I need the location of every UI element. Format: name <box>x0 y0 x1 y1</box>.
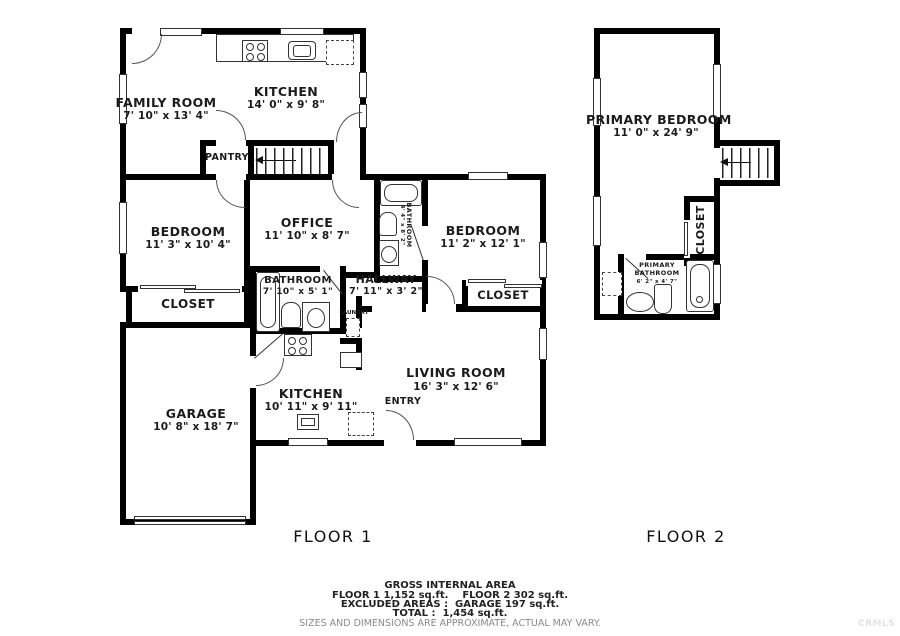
door-opening <box>384 440 416 446</box>
room-dims: 11' 0" x 24' 9" <box>586 127 726 139</box>
room-dims: 11' 2" x 12' 1" <box>423 238 543 250</box>
sliding-door <box>684 222 688 256</box>
room-dims: 10' 11" x 9' 11" <box>251 401 371 413</box>
room-label: PANTRY <box>197 152 257 163</box>
counter-icon <box>340 352 362 368</box>
window-marker <box>119 202 127 254</box>
room-label: CLOSET <box>138 297 238 311</box>
floor1-caption: FLOOR 1 <box>273 527 393 546</box>
laundry-machine-dashed <box>346 318 360 337</box>
room-label: PRIMARY BEDROOM <box>586 112 726 127</box>
door-opening <box>372 306 422 312</box>
room-dims: 11' 3" x 10' 4" <box>128 239 248 251</box>
stairs-arrow-head <box>720 158 728 166</box>
appliance-dashed <box>348 412 374 436</box>
island-inset <box>301 418 315 426</box>
room-label-vertical: CLOSET <box>694 200 710 260</box>
watermark: CRMLS <box>858 619 895 629</box>
floor-plan-canvas: FAMILY ROOM 7' 10" x 13' 4" KITCHEN 14' … <box>0 0 900 636</box>
window-marker <box>288 438 328 446</box>
stairs-arrow <box>262 160 296 161</box>
garage-door <box>134 516 246 520</box>
room-label: CLOSET <box>453 288 553 302</box>
room-label: LAUNDRY <box>332 310 376 316</box>
wall-segment <box>248 140 334 146</box>
room-label-vertical: BATHROOM 4' 4" x 8' 2" <box>371 190 441 260</box>
burner-icon <box>299 347 307 355</box>
room-label: KITCHEN <box>226 84 346 99</box>
disclaimer-text: SIZES AND DIMENSIONS ARE APPROXIMATE, AC… <box>250 618 650 629</box>
room-dims: 11' 10" x 8' 7" <box>247 230 367 242</box>
room-label: BEDROOM <box>423 223 543 238</box>
room-dims: 16' 3" x 12' 6" <box>396 381 516 393</box>
stairs-arrow <box>727 162 751 163</box>
room-dims: 7' 10" x 5' 1" <box>253 287 343 297</box>
drain-icon <box>696 296 703 303</box>
window-marker <box>713 64 721 118</box>
burner-icon <box>288 347 296 355</box>
refrigerator-icon <box>326 40 354 65</box>
door-opening <box>216 140 246 146</box>
window-marker <box>454 438 522 446</box>
room-label: BATHROOM <box>405 202 413 247</box>
window-marker <box>160 28 202 36</box>
room-label: BEDROOM <box>128 224 248 239</box>
sliding-door <box>468 279 506 283</box>
room-label: LIVING ROOM <box>396 365 516 380</box>
room-label: GARAGE <box>136 406 256 421</box>
shower-dashed <box>602 272 622 296</box>
floor2-caption: FLOOR 2 <box>626 527 746 546</box>
window-marker <box>593 196 601 246</box>
room-dims: 10' 8" x 18' 7" <box>136 421 256 433</box>
window-marker <box>468 172 508 180</box>
burner-icon <box>288 337 296 345</box>
room-label: HALLWAY <box>336 273 436 286</box>
stairs-floor1 <box>256 148 326 174</box>
wall-segment <box>340 338 362 344</box>
burner-icon <box>257 43 265 51</box>
room-label: PRIMARY BATHROOM <box>634 262 680 277</box>
room-dims: 6' 2" x 4' 7" <box>621 279 693 285</box>
window-marker <box>359 72 367 98</box>
room-dims: 4' 4" x 8' 2" <box>399 205 405 246</box>
sink-icon <box>281 302 301 328</box>
window-marker <box>539 328 547 360</box>
burner-icon <box>246 43 254 51</box>
window-marker <box>713 264 721 304</box>
wall-segment <box>356 296 362 310</box>
sliding-door <box>184 289 240 293</box>
room-label: ENTRY <box>377 396 429 407</box>
sink-icon <box>626 292 654 312</box>
room-label: OFFICE <box>247 215 367 230</box>
stairs-floor2 <box>722 148 774 178</box>
room-label: FAMILY ROOM <box>106 95 226 110</box>
door-opening <box>426 304 456 313</box>
toilet-bowl <box>307 308 325 328</box>
room-label: KITCHEN <box>251 386 371 401</box>
toilet-icon <box>654 284 672 314</box>
room-label: BATHROOM <box>253 275 343 286</box>
burner-icon <box>246 53 254 61</box>
room-dims: 7' 11" x 3' 2" <box>336 286 436 297</box>
room-dims: 7' 10" x 13' 4" <box>106 110 226 122</box>
burner-icon <box>257 53 265 61</box>
garage-door <box>134 521 246 525</box>
room-dims: 14' 0" x 9' 8" <box>226 99 346 111</box>
sink-basin <box>293 45 311 57</box>
burner-icon <box>299 337 307 345</box>
